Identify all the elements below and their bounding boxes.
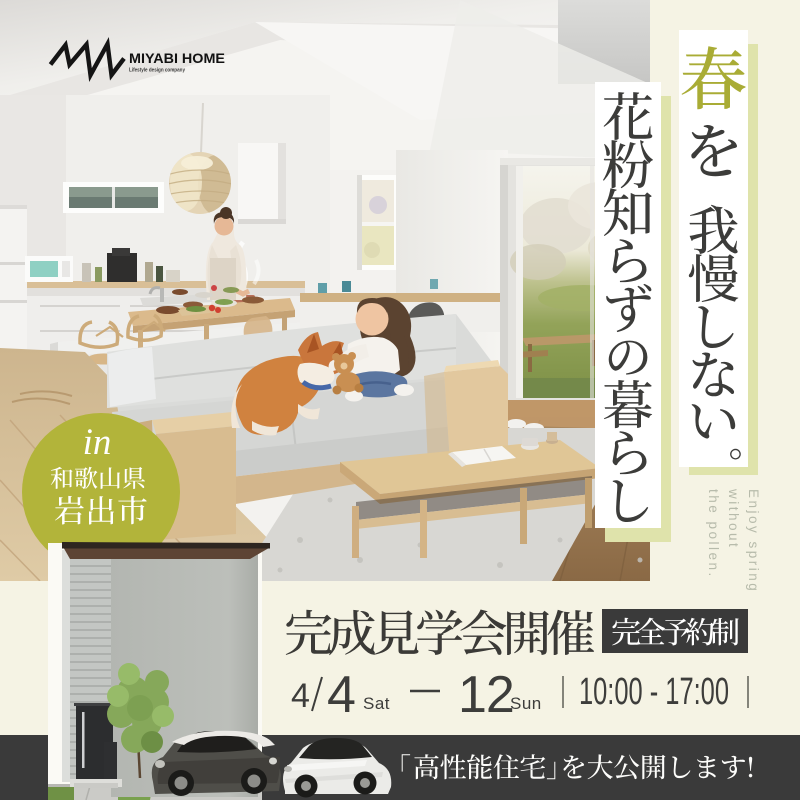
svg-text:Enjoy spring: Enjoy spring [746, 489, 761, 593]
svg-text:MIYABI HOME: MIYABI HOME [129, 50, 225, 66]
svg-text:Lifestyle design company: Lifestyle design company [129, 68, 186, 74]
svg-text:10:00 - 17:00: 10:00 - 17:00 [579, 671, 729, 713]
svg-text:Sun: Sun [510, 694, 542, 713]
svg-text:12: 12 [458, 666, 514, 724]
svg-text:4: 4 [291, 677, 310, 715]
svg-text:in: in [83, 422, 112, 463]
svg-text:Sat: Sat [363, 694, 390, 713]
svg-text:the pollen.: the pollen. [706, 489, 721, 579]
svg-text:without: without [726, 488, 741, 549]
svg-text:4: 4 [327, 666, 356, 724]
